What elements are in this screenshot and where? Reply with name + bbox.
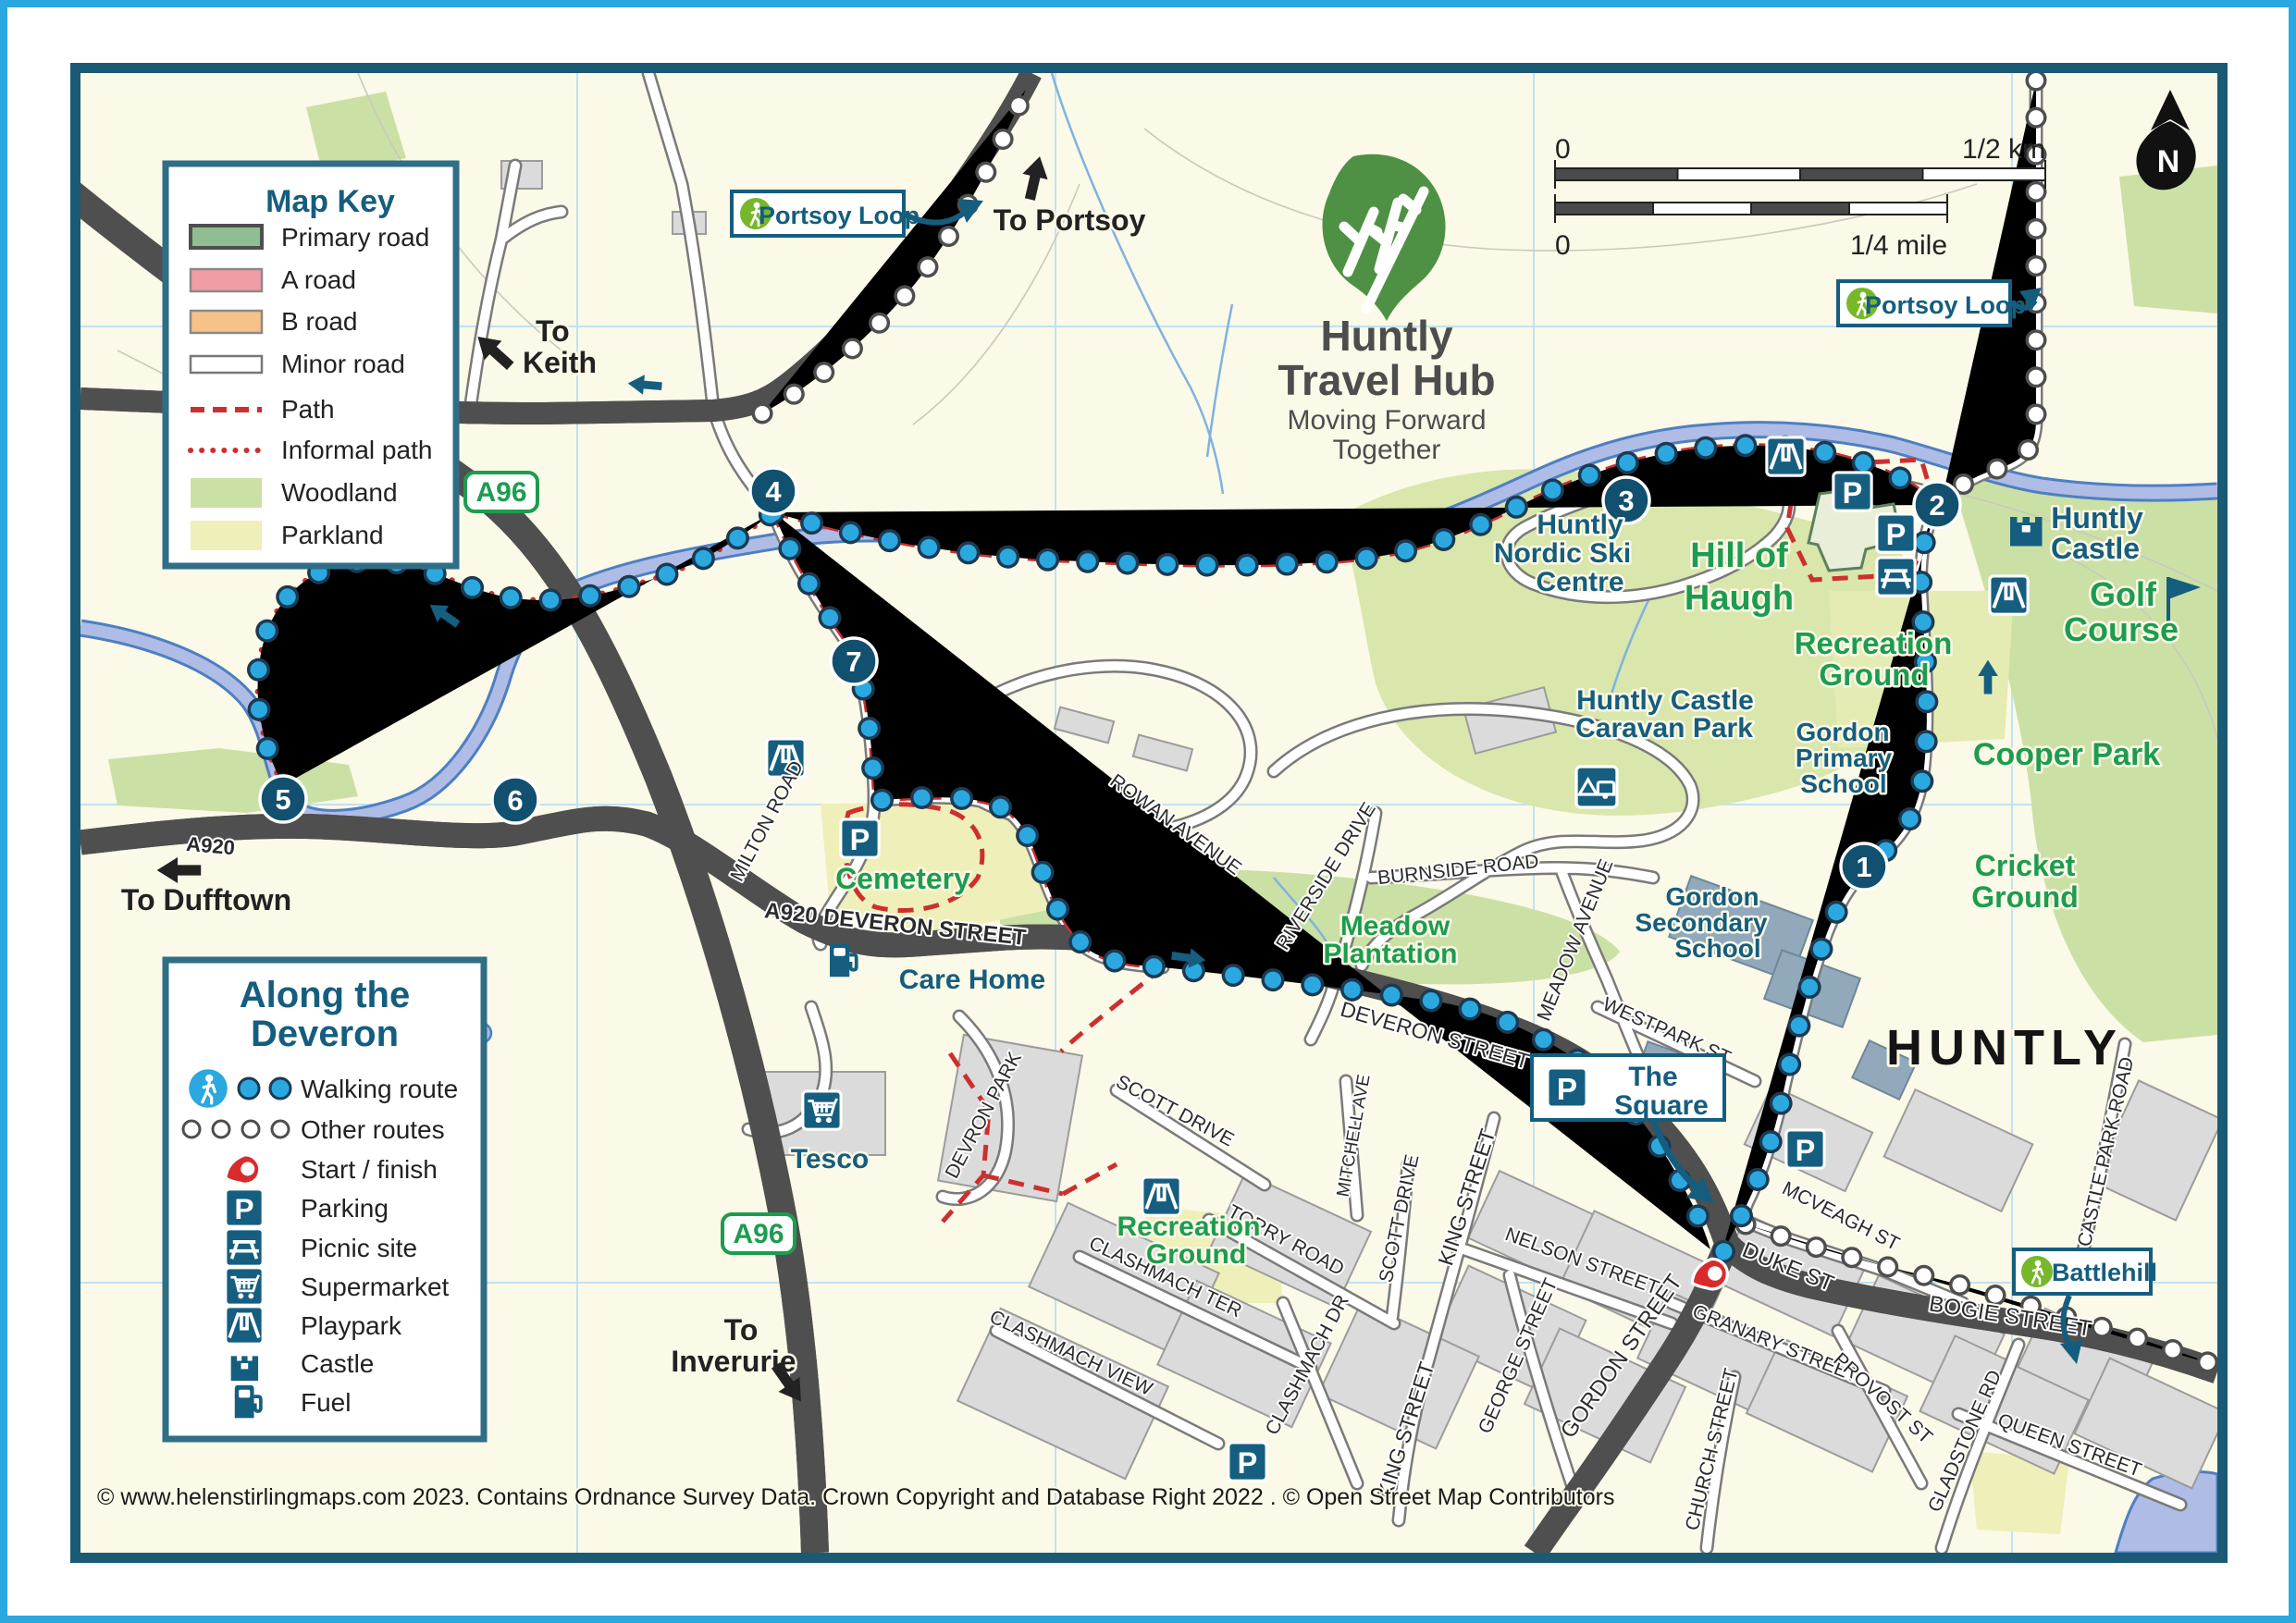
key-fuel: Fuel [301,1388,351,1417]
parking-icon [226,1189,263,1226]
playpark-icon [1767,437,1805,475]
road-ref-a920: A920 [185,832,236,859]
scale-mile-zero: 0 [1555,230,1571,261]
picnic-icon [1877,558,1915,596]
label-gordon-primary: Primary [1796,744,1893,772]
route-legend-title: Along the [240,975,410,1015]
key-b-road: B road [281,307,358,336]
label-golf-course: Golf [2090,575,2157,613]
key-other-routes: Other routes [301,1115,445,1144]
label-gordon-primary: Gordon [1796,718,1889,746]
playpark-icon [226,1307,263,1344]
waypoint-7: 7 [846,646,861,678]
portsoy-loop-text: Portsoy Loop [1865,291,2026,319]
label-meadow-plantation: Meadow [1340,911,1450,941]
label-care-home: Care Home [899,965,1045,995]
label-caravan-park: Caravan Park [1575,713,1753,744]
castle-icon [231,1356,258,1381]
logo-tagline: Together [1333,435,1441,465]
playpark-icon [1990,576,2028,614]
battlehill-text: Battlehill [2052,1259,2157,1286]
castle-icon [2010,517,2043,547]
label-nordic-ski-centre: Centre [1536,567,1623,597]
portsoy-loop-label-2: Portsoy Loop [1838,281,2042,326]
label-cemetery: Cemetery [835,862,970,895]
map-canvas: P [80,73,2217,1553]
label-to-keith: To [536,314,570,348]
the-square-text: Square [1614,1090,1709,1121]
label-gordon-secondary: Secondary [1635,908,1768,937]
key-minor-road: Minor road [281,350,405,378]
label-to-keith: Keith [523,346,597,379]
waypoint-2: 2 [1929,489,1944,522]
key-woodland: Woodland [281,478,398,507]
portsoy-loop-text: Portsoy Loop [759,202,920,229]
waypoint-6: 6 [507,784,523,817]
parking-icon [1548,1068,1586,1107]
key-parking: Parking [301,1194,389,1223]
parking-icon [1833,473,1871,510]
label-recreation-ground: Recreation [1795,626,1953,660]
label-recreation-ground-sw: Recreation [1117,1211,1260,1242]
parking-icon [1786,1130,1824,1168]
key-walking-route: Walking route [301,1075,458,1103]
scale-km-zero: 0 [1555,134,1571,165]
label-nordic-ski-centre: Nordic Ski [1494,538,1631,569]
label-cooper-park: Cooper Park [1973,737,2160,772]
label-gordon-secondary: School [1674,934,1760,963]
label-huntly-castle: Huntly [2051,501,2143,535]
key-start-finish: Start / finish [301,1155,438,1184]
label-tesco: Tesco [791,1144,869,1174]
the-square-text: The [1628,1062,1677,1092]
logo-tagline: Moving Forward [1287,405,1486,436]
key-playpark: Playpark [301,1311,402,1340]
key-path: Path [281,395,335,424]
caravan-site-icon [1576,767,1617,807]
label-caravan-park: Huntly Castle [1576,685,1754,716]
label-hill-of-haugh: Haugh [1685,579,1794,618]
label-meadow-plantation: Plantation [1323,939,1457,969]
map-key-title: Map Key [265,184,395,219]
label-huntly-town: HUNTLY [1886,1020,2123,1076]
key-castle: Castle [301,1349,374,1378]
walker-icon [2021,1256,2053,1287]
scale-mile-label: 1/4 mile [1850,230,1947,261]
label-cricket-ground: Ground [1971,880,2079,914]
label-huntly-castle: Castle [2051,532,2140,565]
map-key-legend: Map Key Primary road A road B road Minor… [166,164,456,566]
copyright-text: © www.helenstirlingmaps.com 2023. Contai… [97,1484,1614,1510]
parking-icon [1228,1443,1266,1481]
map-frame: P [70,63,2228,1563]
waypoint-1: 1 [1856,851,1871,883]
waypoint-4: 4 [765,475,782,508]
label-recreation-ground: Ground [1819,658,1929,692]
label-nordic-ski-centre: Huntly [1537,510,1623,540]
label-cricket-ground: Cricket [1975,849,2076,882]
north-letter: N [2157,144,2180,179]
label-hill-of-haugh: Hill of [1690,536,1788,575]
walker-icon-blue [189,1069,228,1108]
supermarket-icon [803,1091,841,1129]
road-ref-a96: A96 [733,1219,784,1249]
label-gordon-primary: School [1800,769,1886,798]
waypoint-5: 5 [275,783,290,816]
key-primary-road: Primary road [281,223,429,252]
road-ref-a96: A96 [475,477,526,508]
supermarket-icon [226,1268,263,1305]
parking-icon [1877,514,1915,552]
label-gordon-secondary: Gordon [1665,882,1759,911]
key-supermarket: Supermarket [301,1273,450,1301]
parking-icon [841,819,879,857]
key-informal-path: Informal path [281,436,432,464]
route-legend: Along the Deveron Walking route Other ro… [166,960,484,1439]
scale-km-label: 1/2 km [1962,134,2045,165]
label-to-inverurie: To [724,1313,759,1346]
label-recreation-ground-sw: Ground [1146,1239,1246,1270]
logo-title: Huntly [1320,312,1453,360]
key-picnic-site: Picnic site [301,1234,417,1262]
logo-title: Travel Hub [1278,356,1495,404]
key-a-road: A road [281,265,356,294]
key-parkland: Parkland [281,521,384,549]
label-to-portsoy: To Portsoy [994,203,1146,237]
label-golf-course: Course [2064,610,2179,648]
route-legend-title: Deveron [251,1014,399,1054]
label-to-dufftown: To Dufftown [121,883,291,916]
playpark-icon [1142,1177,1180,1215]
picnic-icon [226,1229,263,1266]
